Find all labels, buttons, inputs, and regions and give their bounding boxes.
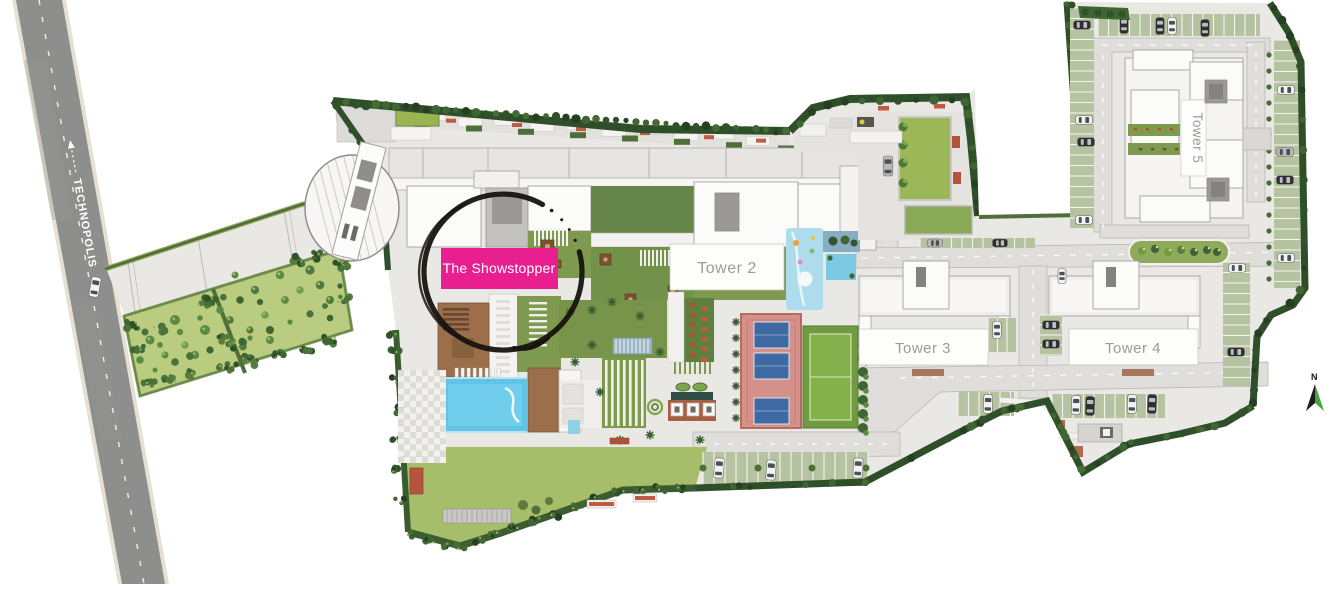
svg-text:Tower 3: Tower 3 [895, 340, 951, 357]
svg-text:Tower 5: Tower 5 [1190, 113, 1205, 164]
svg-text:Tower 2: Tower 2 [697, 260, 757, 277]
svg-text:N: N [1311, 372, 1318, 382]
svg-text:Tower 4: Tower 4 [1105, 340, 1161, 357]
svg-text:The Showstopper: The Showstopper [443, 260, 556, 276]
